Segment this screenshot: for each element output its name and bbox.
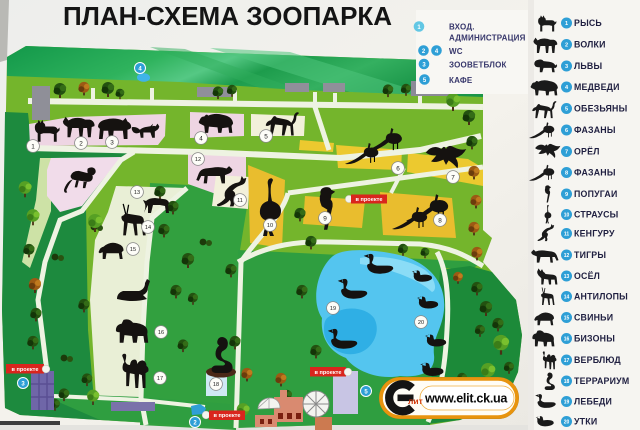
svg-text:10: 10 (564, 213, 570, 219)
svg-text:8: 8 (565, 171, 568, 177)
svg-text:14: 14 (564, 295, 570, 301)
svg-text:10: 10 (267, 223, 273, 229)
svg-text:12: 12 (195, 157, 201, 163)
svg-text:20: 20 (418, 320, 424, 326)
svg-text:17: 17 (564, 358, 570, 364)
svg-text:ОБЕЗЬЯНЫ: ОБЕЗЬЯНЫ (574, 104, 628, 114)
svg-text:17: 17 (157, 376, 163, 382)
svg-text:5: 5 (264, 134, 268, 141)
svg-text:2: 2 (565, 43, 568, 49)
svg-text:13: 13 (564, 274, 570, 280)
svg-text:АНТИЛОПЫ: АНТИЛОПЫ (574, 292, 628, 302)
svg-text:УТКИ: УТКИ (574, 417, 597, 427)
svg-text:в проекте: в проекте (315, 370, 342, 376)
svg-text:ВЕРБЛЮД: ВЕРБЛЮД (574, 355, 621, 365)
svg-text:13: 13 (134, 190, 140, 196)
svg-text:ПЛАН-СХЕМА ЗООПАРКА: ПЛАН-СХЕМА ЗООПАРКА (63, 1, 392, 31)
svg-text:СВИНЬИ: СВИНЬИ (574, 313, 613, 323)
svg-text:WC: WC (449, 47, 463, 56)
svg-text:ТИГРЫ: ТИГРЫ (574, 250, 606, 260)
svg-text:АДМИНИСТРАЦИЯ: АДМИНИСТРАЦИЯ (449, 34, 526, 43)
svg-text:ОРЁЛ: ОРЁЛ (574, 147, 600, 157)
svg-text:16: 16 (158, 330, 164, 336)
svg-text:18: 18 (213, 382, 219, 388)
svg-text:9: 9 (323, 216, 327, 223)
svg-text:4: 4 (199, 136, 203, 143)
svg-text:лит: лит (408, 396, 423, 406)
svg-text:ЛЬВЫ: ЛЬВЫ (574, 61, 602, 71)
svg-text:1: 1 (565, 21, 568, 27)
svg-text:9: 9 (565, 192, 568, 198)
svg-text:ОСЁЛ: ОСЁЛ (574, 271, 600, 281)
svg-text:www.elit.ck.ua: www.elit.ck.ua (424, 392, 508, 406)
svg-text:19: 19 (564, 400, 570, 406)
svg-text:ВОЛКИ: ВОЛКИ (574, 40, 606, 50)
svg-text:1: 1 (31, 144, 35, 151)
svg-text:КЕНГУРУ: КЕНГУРУ (574, 229, 615, 239)
svg-text:16: 16 (564, 337, 570, 343)
svg-text:6: 6 (396, 166, 400, 173)
svg-text:2: 2 (79, 141, 83, 148)
svg-text:7: 7 (565, 150, 568, 156)
svg-text:7: 7 (451, 175, 455, 182)
svg-text:11: 11 (237, 198, 243, 204)
svg-text:12: 12 (564, 253, 570, 259)
svg-text:МЕДВЕДИ: МЕДВЕДИ (574, 82, 620, 92)
svg-text:ТЕРРАРИУМ: ТЕРРАРИУМ (574, 376, 629, 386)
svg-text:РЫСЬ: РЫСЬ (574, 18, 602, 28)
svg-text:6: 6 (565, 128, 568, 134)
svg-text:18: 18 (564, 379, 570, 385)
svg-text:5: 5 (565, 107, 568, 113)
svg-text:БИЗОНЫ: БИЗОНЫ (574, 334, 615, 344)
svg-text:в проекте: в проекте (356, 197, 383, 203)
svg-text:8: 8 (438, 218, 442, 225)
svg-text:15: 15 (130, 247, 136, 253)
svg-text:ЛЕБЕДИ: ЛЕБЕДИ (574, 397, 612, 407)
svg-text:в проекте: в проекте (12, 367, 39, 373)
svg-text:ФАЗАНЫ: ФАЗАНЫ (574, 168, 616, 178)
svg-text:19: 19 (330, 306, 336, 312)
svg-text:ЗООВЕТБЛОК: ЗООВЕТБЛОК (449, 61, 507, 70)
svg-text:3: 3 (110, 140, 114, 147)
svg-text:ВХОД.: ВХОД. (449, 23, 475, 32)
svg-text:20: 20 (564, 420, 570, 426)
svg-text:15: 15 (564, 316, 570, 322)
svg-text:ПОПУГАИ: ПОПУГАИ (574, 189, 617, 199)
svg-text:КАФЕ: КАФЕ (449, 76, 473, 85)
svg-text:14: 14 (145, 225, 151, 231)
svg-text:ФАЗАНЫ: ФАЗАНЫ (574, 125, 616, 135)
svg-text:11: 11 (564, 232, 570, 238)
svg-text:СТРАУСЫ: СТРАУСЫ (574, 210, 619, 220)
svg-text:в проекте: в проекте (214, 413, 241, 419)
svg-text:3: 3 (565, 64, 568, 70)
